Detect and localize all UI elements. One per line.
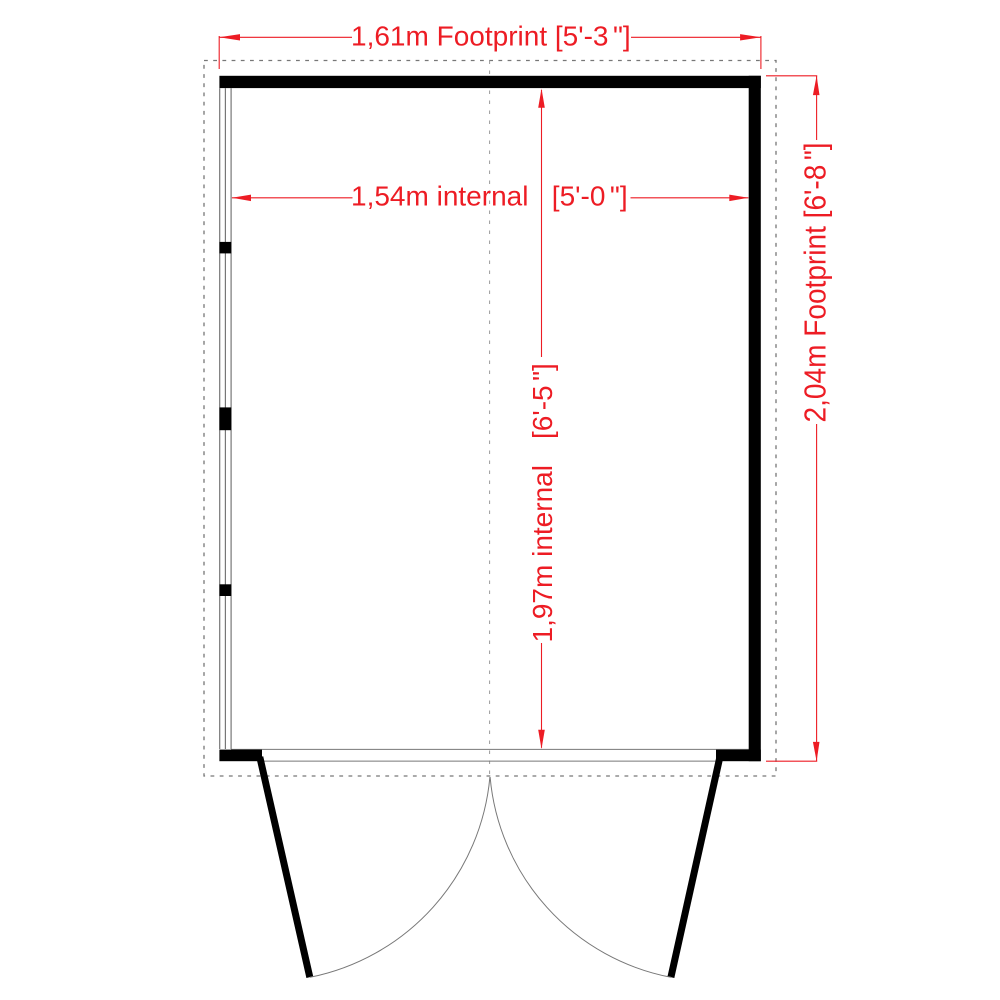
- svg-text:1,61m Footprint [5'-3"]: 1,61m Footprint [5'-3"]: [351, 20, 631, 51]
- svg-text:2,04m Footprint [6'-8"]: 2,04m Footprint [6'-8"]: [798, 142, 833, 422]
- svg-text:1,97m internal: 1,97m internal: [527, 465, 558, 642]
- svg-text:[6'-5"]: [6'-5"]: [527, 363, 558, 439]
- svg-text:[5'-0"]: [5'-0"]: [552, 180, 628, 211]
- svg-text:1,54m internal: 1,54m internal: [351, 180, 528, 211]
